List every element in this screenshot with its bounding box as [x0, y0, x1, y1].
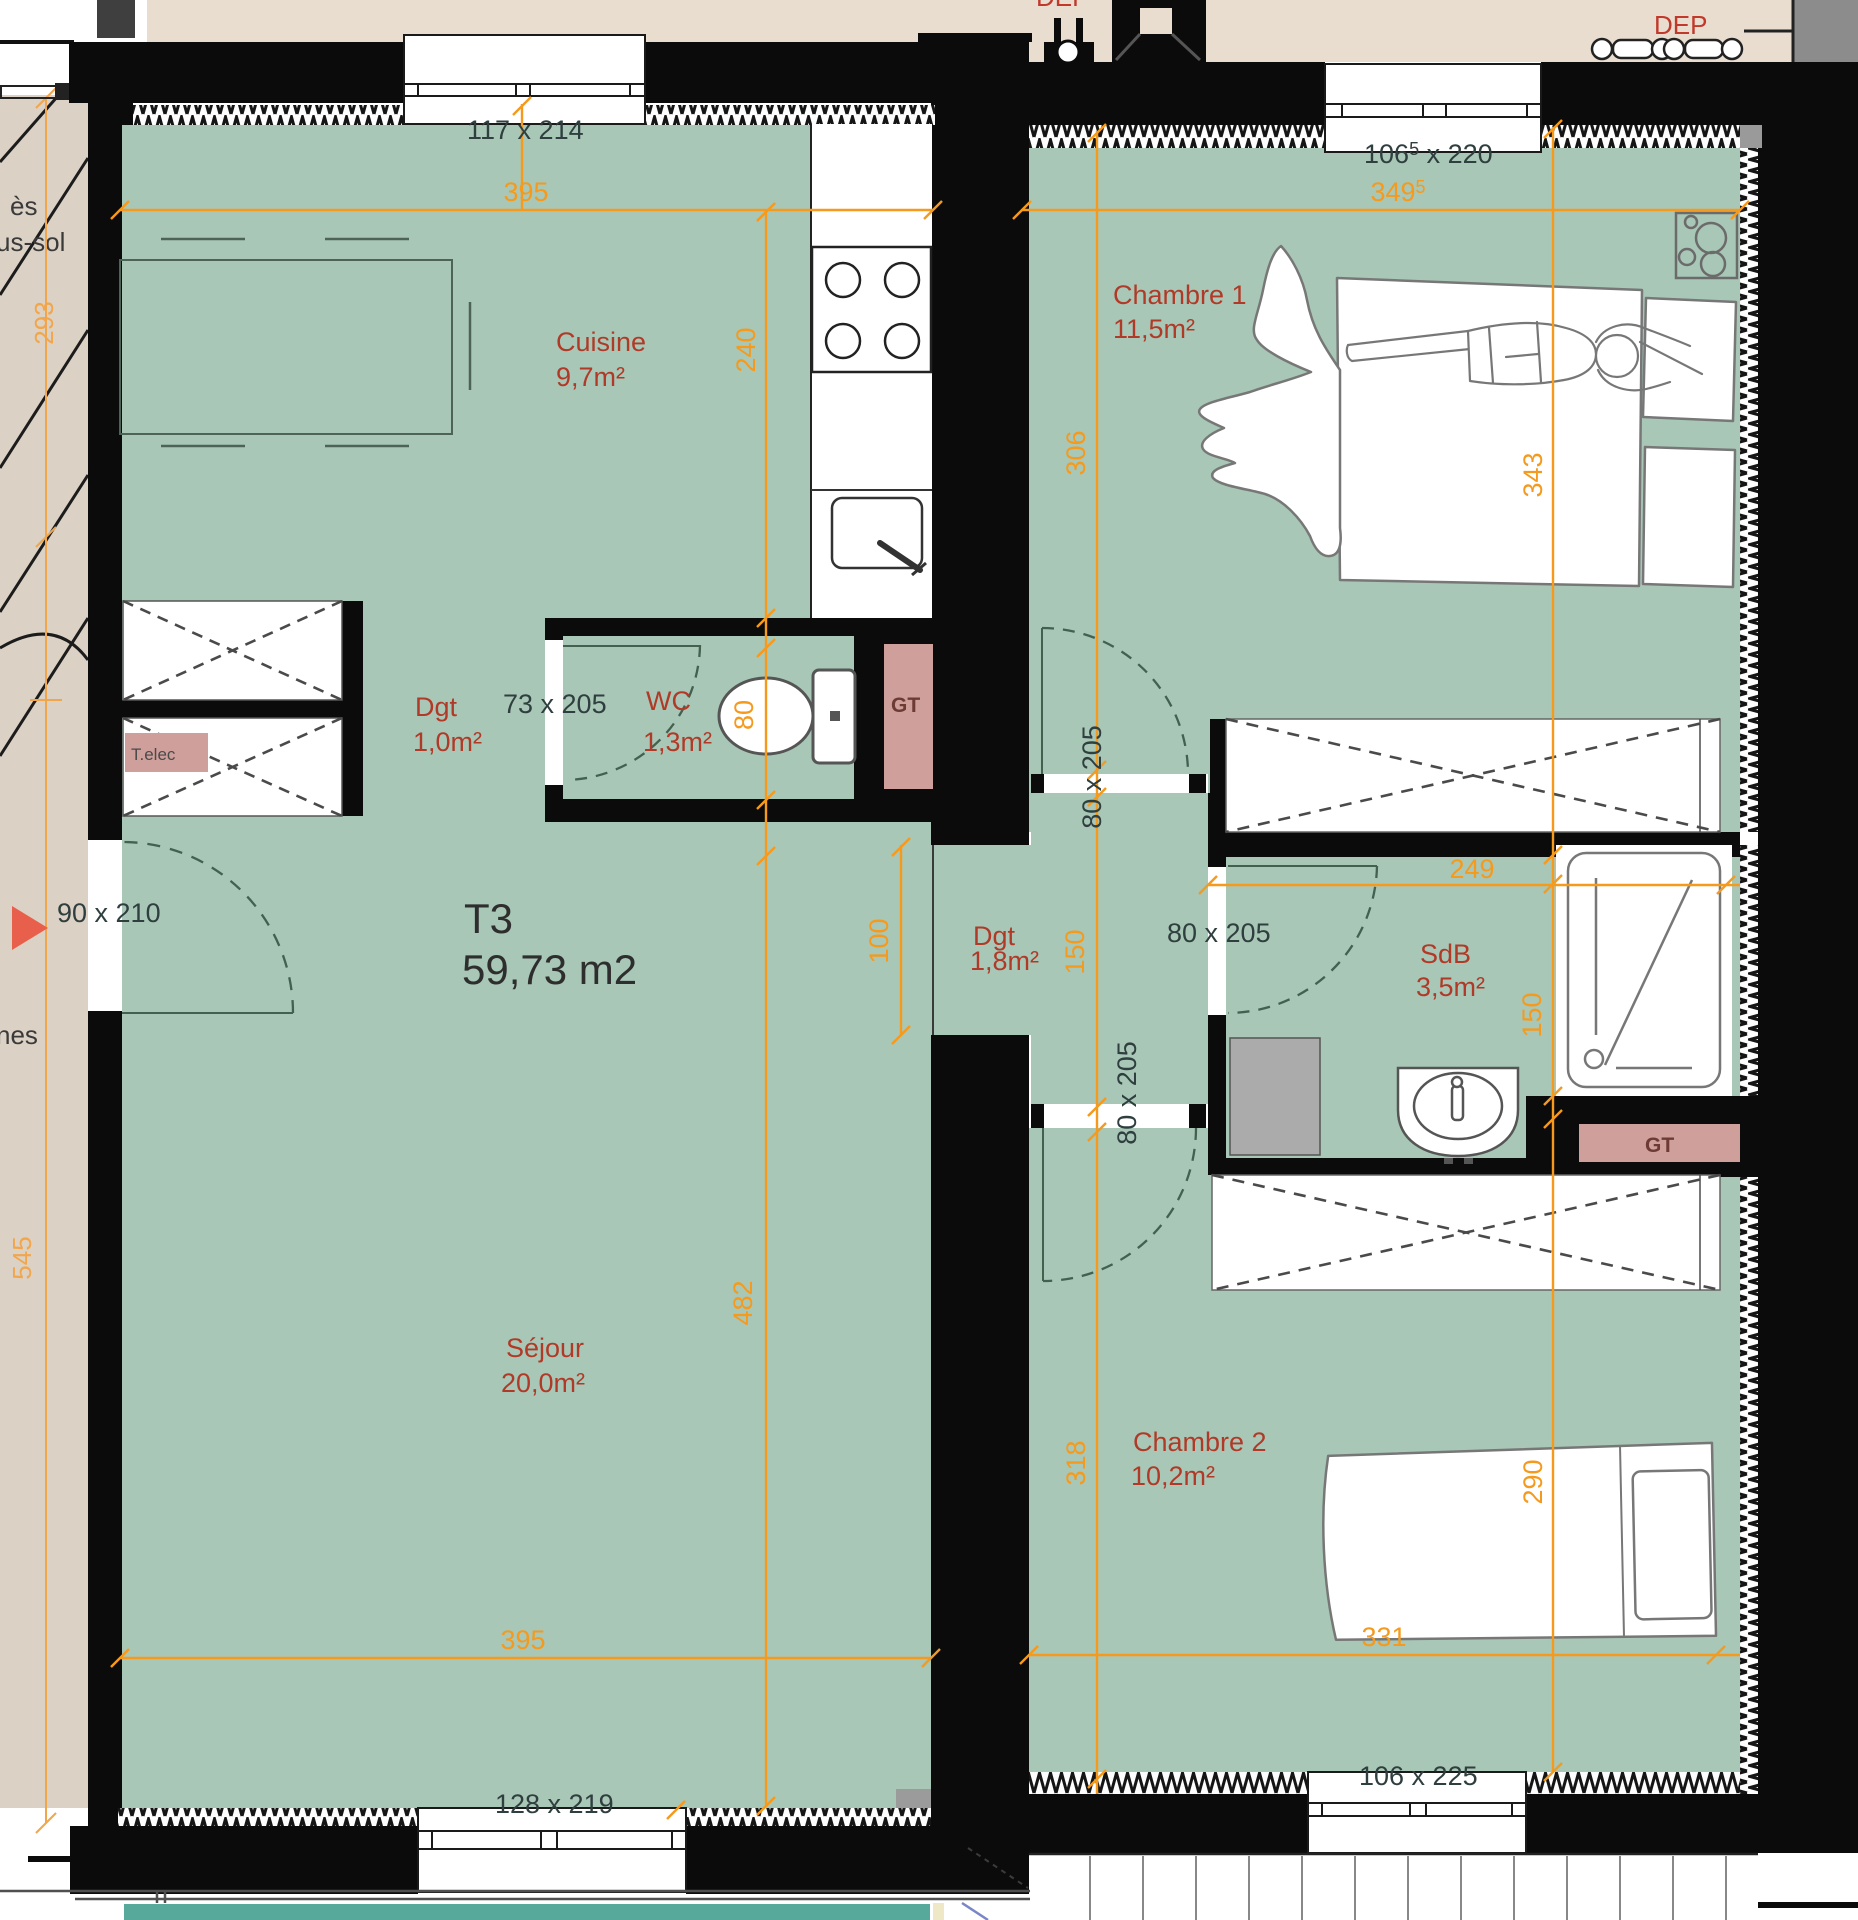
svg-text:128 x 219: 128 x 219: [495, 1789, 614, 1819]
svg-text:482: 482: [728, 1280, 758, 1325]
svg-text:80 x 205: 80 x 205: [1077, 725, 1107, 829]
svg-text:100: 100: [864, 918, 894, 963]
svg-text:Cuisine: Cuisine: [556, 327, 646, 357]
svg-text:Chambre 2: Chambre 2: [1133, 1427, 1267, 1457]
svg-text:GT: GT: [1645, 1134, 1674, 1157]
svg-text:150: 150: [1060, 929, 1090, 974]
svg-text:331: 331: [1361, 1622, 1406, 1652]
svg-text:395: 395: [500, 1625, 545, 1655]
svg-text:Dgt: Dgt: [415, 692, 458, 722]
svg-text:1065 x 220: 1065 x 220: [1364, 139, 1493, 169]
svg-text:240: 240: [731, 327, 761, 372]
svg-text:545: 545: [7, 1236, 37, 1279]
svg-text:150: 150: [1517, 992, 1547, 1037]
svg-text:us-sol: us-sol: [0, 227, 65, 257]
svg-text:318: 318: [1061, 1440, 1091, 1485]
svg-text:9,7m²: 9,7m²: [556, 362, 625, 392]
svg-text:1,0m²: 1,0m²: [413, 727, 482, 757]
svg-text:3,5m²: 3,5m²: [1416, 972, 1485, 1002]
svg-text:73 x 205: 73 x 205: [503, 689, 607, 719]
svg-text:Séjour: Séjour: [506, 1333, 584, 1363]
svg-text:SdB: SdB: [1420, 939, 1471, 969]
svg-text:DEP: DEP: [1654, 10, 1707, 40]
svg-text:nes: nes: [0, 1020, 38, 1050]
svg-text:DEP: DEP: [1036, 0, 1089, 12]
svg-text:1,3m²: 1,3m²: [643, 727, 712, 757]
svg-text:117 x 214: 117 x 214: [467, 115, 584, 145]
svg-text:306: 306: [1061, 430, 1091, 475]
svg-text:11,5m²: 11,5m²: [1113, 314, 1195, 344]
svg-text:106 x 225: 106 x 225: [1359, 1761, 1478, 1791]
svg-text:WC: WC: [646, 686, 691, 716]
svg-text:249: 249: [1449, 854, 1494, 884]
svg-text:80 x 205: 80 x 205: [1167, 918, 1271, 948]
svg-text:343: 343: [1518, 452, 1548, 497]
svg-text:90 x 210: 90 x 210: [57, 898, 161, 928]
svg-text:20,0m²: 20,0m²: [501, 1368, 585, 1398]
svg-text:1,8m²: 1,8m²: [970, 946, 1039, 976]
svg-text:290: 290: [1518, 1459, 1548, 1504]
svg-text:T.elec: T.elec: [131, 745, 176, 764]
svg-text:10,2m²: 10,2m²: [1131, 1461, 1215, 1491]
svg-text:T3: T3: [464, 895, 513, 942]
svg-text:293: 293: [29, 301, 59, 344]
svg-text:59,73 m2: 59,73 m2: [462, 946, 637, 993]
svg-text:80 x 205: 80 x 205: [1112, 1041, 1142, 1145]
svg-text:GT: GT: [891, 694, 920, 717]
svg-text:395: 395: [503, 177, 548, 207]
svg-text:80: 80: [729, 700, 759, 730]
svg-text:ès: ès: [10, 191, 37, 221]
svg-text:Chambre 1: Chambre 1: [1113, 280, 1247, 310]
